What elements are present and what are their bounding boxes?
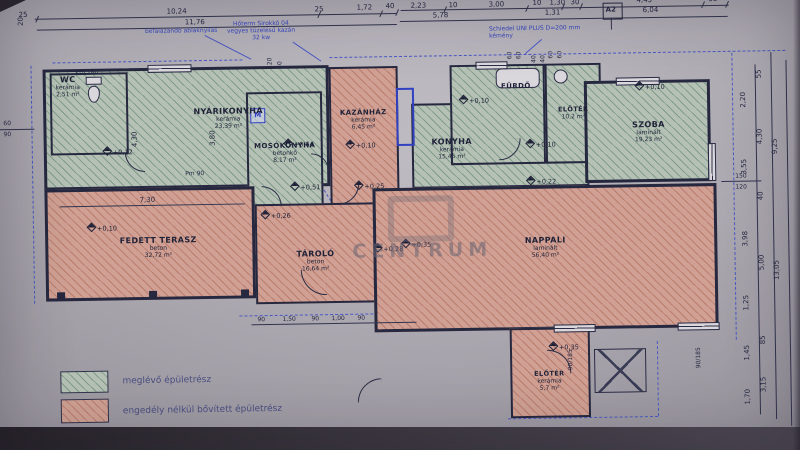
- elevation-mark: +0,10: [460, 96, 489, 105]
- dim-label: 3,00: [488, 0, 504, 8]
- dim-label: 85: [759, 335, 767, 344]
- roof-dashed-line: [731, 53, 737, 340]
- window-dim-label: 120: [735, 184, 747, 191]
- dim-label: 60: [515, 51, 522, 59]
- terrace-post: [149, 291, 157, 299]
- window: [708, 143, 717, 181]
- room-area: 15,45 m²: [414, 153, 490, 161]
- photo-dark-bottom-bar: [0, 427, 800, 450]
- room-label-nyarikonyha: NYÁRIKONYHA kerámia 23,39 m²: [138, 105, 318, 131]
- elevation-mark: +0,10: [636, 82, 665, 91]
- section-marker-label: A2: [606, 6, 616, 14]
- window: [147, 64, 191, 73]
- dim-label: 4,30: [131, 132, 139, 148]
- dim-label: 55: [708, 0, 717, 3]
- elevation-value: +0,64: [294, 140, 314, 148]
- elevation-icon: [283, 138, 293, 148]
- dim-line: [755, 64, 761, 414]
- elevation-icon: [354, 180, 364, 190]
- elevation-icon: [290, 181, 300, 191]
- room-label-kamra: ELŐTÉR 10,2 m²: [545, 105, 601, 121]
- photo-edge-shadow: [793, 0, 800, 450]
- legend-swatch-unpermitted: [61, 399, 109, 424]
- terrace-post: [57, 292, 65, 300]
- dim-label: 90: [257, 316, 265, 323]
- dim-line: [0, 129, 34, 131]
- room-label-furdo: FÜRDŐ: [486, 82, 546, 91]
- elevation-mark: +0,25: [355, 181, 384, 190]
- dim-label: 1,00: [331, 315, 344, 322]
- watermark-text: CENTRUM: [352, 239, 492, 263]
- legend-swatch-existing: [60, 371, 108, 394]
- section-marker-line: [611, 18, 612, 30]
- dim-label: 4,45: [636, 0, 652, 4]
- door-arc: [357, 378, 381, 402]
- dim-tick: [395, 9, 399, 16]
- room-area: 19,23 m²: [607, 135, 691, 143]
- note-leader-line: [525, 39, 542, 54]
- elevation-value: +0,25: [364, 182, 384, 190]
- dim-label: 25: [19, 11, 28, 19]
- dim-label: 7,30: [140, 196, 156, 204]
- room-name: FÜRDŐ: [486, 82, 546, 91]
- dim-label: 40: [539, 55, 546, 63]
- room-label-wc: WC kerámia 2,51 m²: [48, 75, 88, 99]
- dim-label: 1,50: [282, 316, 295, 323]
- dim-line: [35, 13, 397, 20]
- dim-label: 1,30: [549, 0, 565, 7]
- parapet-label: Pm 180: [76, 69, 99, 76]
- elevation-mark: +0,35: [550, 342, 579, 351]
- elevation-value: +0,10: [469, 97, 489, 105]
- dim-label: 25: [315, 5, 324, 13]
- elevation-icon: [548, 341, 558, 351]
- room-area: 6,45 m²: [326, 123, 400, 131]
- terrace-post: [241, 289, 249, 297]
- elevation-value: +0,10: [97, 224, 117, 232]
- dim-label: 1,31: [545, 8, 561, 16]
- elevation-mark: +0,22: [527, 177, 556, 186]
- elevation-icon: [526, 175, 536, 185]
- dim-label: 90: [311, 315, 319, 322]
- elevation-value: +0,26: [271, 212, 291, 220]
- elevation-mark: +0,12: [104, 147, 133, 156]
- floor-plan-drawing: 20 25 10,24 25 1,72 40 2,23 10 3,00 10 1…: [0, 0, 800, 450]
- watermark-logo: [388, 195, 455, 242]
- dim-label: 40: [757, 191, 765, 200]
- room-area: 8,17 m²: [245, 156, 325, 164]
- room-area: 2,51 m²: [48, 91, 88, 99]
- note-walled-up-window: befalazandó ablaknyílás: [145, 27, 218, 35]
- dim-label: 3,55: [740, 159, 748, 175]
- elevation-icon: [260, 210, 270, 220]
- dim-label: 55: [755, 69, 763, 78]
- window: [678, 322, 720, 331]
- elevation-mark: +0,64: [285, 139, 314, 148]
- dim-label: 60: [556, 51, 563, 59]
- dim-label: 30: [570, 0, 579, 6]
- parapet-label: Pm 90: [185, 170, 204, 177]
- elevation-mark: +0,10: [88, 223, 117, 232]
- note-leader-line: [293, 42, 322, 62]
- floor-plan-photo: 20 25 10,24 25 1,72 40 2,23 10 3,00 10 1…: [0, 0, 800, 450]
- dim-label: 1,25: [742, 295, 750, 311]
- dim-label: 2,23: [410, 2, 426, 10]
- wc-tank-fixture: [86, 77, 102, 85]
- dim-label: 3,80: [208, 130, 216, 146]
- dim-label: 60: [547, 51, 554, 59]
- dim-label: 60: [3, 120, 11, 127]
- room-label-szoba: SZOBA laminált 19,23 m²: [606, 119, 690, 143]
- dim-label: 1,72: [357, 3, 373, 11]
- elevation-value: +0,12: [113, 148, 133, 156]
- elevation-value: +0,22: [536, 178, 556, 186]
- window: [554, 324, 596, 333]
- dim-label: 9,25: [771, 138, 779, 154]
- dim-label: 3,15: [759, 377, 767, 393]
- elevation-value: +0,10: [356, 141, 376, 149]
- room-label-konyha: KONYHA kerámia 15,45 m²: [414, 137, 490, 161]
- photo-corner-shadow: [0, 0, 26, 12]
- dim-line: [400, 16, 728, 22]
- roof-dashed-line: [52, 59, 242, 63]
- elevation-mark: +0,51: [291, 182, 320, 191]
- dim-label: 5,00: [758, 255, 766, 271]
- elevation-icon: [459, 95, 469, 105]
- dim-label: 1,45: [743, 345, 751, 361]
- dim-line: [785, 60, 792, 426]
- room-area: 5,7 m²: [515, 384, 585, 392]
- legend-label-existing: meglévő épületrész: [122, 375, 211, 386]
- window-dim-label: 90/185: [567, 349, 574, 370]
- dim-label: 1,70: [744, 389, 752, 405]
- dim-line: [770, 52, 777, 419]
- roof-dashed-line: [657, 341, 659, 416]
- elevation-icon: [102, 146, 112, 156]
- room-label-eloter: ELŐTÉR kerámia 5,7 m²: [514, 369, 584, 392]
- dim-label: 40: [530, 55, 537, 63]
- window: [475, 61, 507, 70]
- roof-dashed-line: [30, 66, 35, 304]
- elevation-mark: +0,10: [527, 140, 556, 149]
- room-label-fedett-terasz: FEDETT TERASZ beton 32,72 m²: [78, 235, 238, 261]
- dim-label: 3,98: [741, 231, 749, 247]
- legend-label-unpermitted: engedély nélkül bővített épületrész: [123, 404, 282, 416]
- dim-label: 11,76: [185, 18, 205, 26]
- dim-label: 90: [357, 315, 365, 322]
- elevation-icon: [87, 222, 97, 232]
- elevation-icon: [525, 138, 535, 148]
- dim-label: 60: [506, 52, 513, 60]
- dim-label: 40: [385, 2, 394, 10]
- dim-label: 10: [532, 0, 541, 7]
- dim-label: 10: [448, 1, 457, 9]
- elevation-mark: +0,10: [347, 140, 376, 149]
- dim-label: 13,05: [773, 260, 781, 280]
- note-boiler: Hőterm Sirokkó 04 vegyes tüzelésű kazán …: [227, 20, 296, 42]
- window-dim-label: 90/185: [695, 347, 702, 368]
- dim-label: 5,78: [433, 11, 449, 19]
- room-area: 10,2 m²: [545, 113, 601, 121]
- dim-label: 4,30: [756, 129, 764, 145]
- elevation-mark: +0,26: [262, 211, 291, 220]
- dim-label: 6,04: [643, 6, 659, 14]
- elevation-icon: [345, 139, 355, 149]
- dim-label: 10,24: [167, 7, 187, 15]
- dim-label: 2,20: [739, 92, 747, 108]
- elevation-value: +0,51: [300, 183, 320, 191]
- elevation-value: +0,10: [536, 141, 556, 149]
- entry-steps: [594, 348, 647, 393]
- note-chimney: Schiedel UNI PLUS D=200 mm kémény: [489, 24, 581, 39]
- dim-line: [721, 180, 761, 182]
- dim-label: 90: [3, 131, 11, 138]
- elevation-icon: [634, 81, 644, 91]
- room-label-kazanhaz: KAZÁNHÁZ kerámia 6,45 m²: [326, 108, 400, 131]
- elevation-value: +0,10: [645, 83, 665, 91]
